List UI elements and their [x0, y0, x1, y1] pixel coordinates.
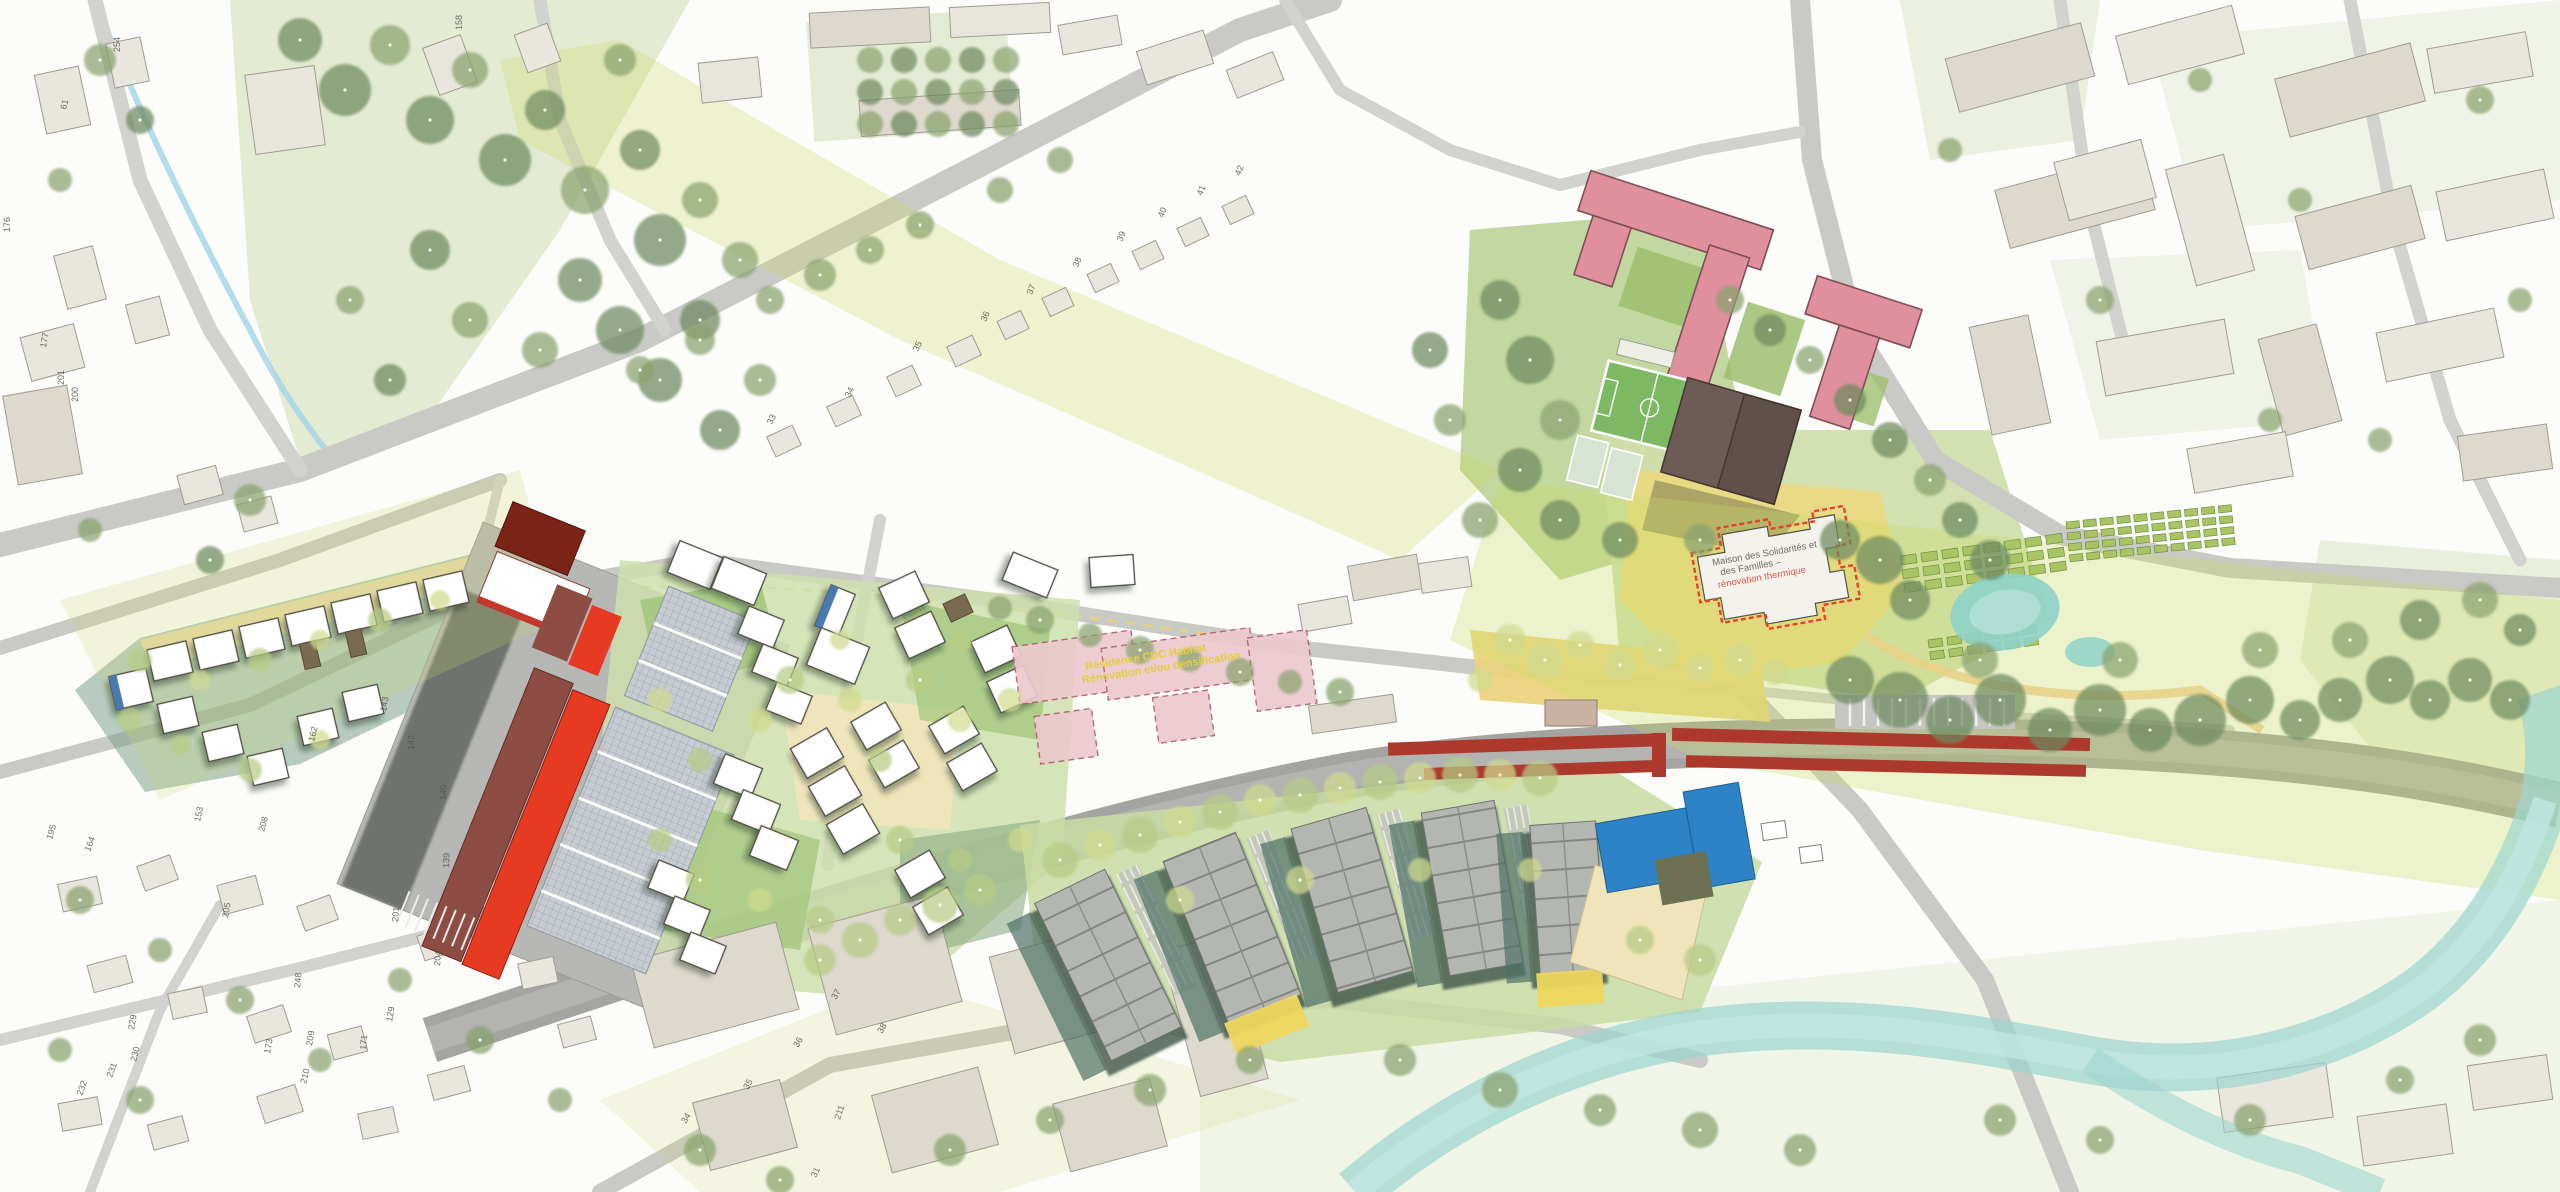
tree-center-dot — [248, 498, 251, 501]
garden-plot — [2100, 517, 2114, 525]
garden-plot — [2086, 552, 2100, 560]
tree-center-dot — [1498, 773, 1501, 776]
tree-center-dot — [1728, 298, 1731, 301]
garden-plot — [2204, 528, 2218, 536]
tree-center-dot — [428, 118, 431, 121]
tree-center-dot — [1508, 638, 1511, 641]
tree — [748, 708, 772, 732]
garden-plot — [1948, 647, 1963, 657]
tree-center-dot — [1218, 810, 1221, 813]
tree-center-dot — [2518, 628, 2521, 631]
tree — [993, 111, 1019, 137]
new-house — [1089, 555, 1135, 588]
tree-center-dot — [1428, 348, 1431, 351]
tree-center-dot — [1698, 1128, 1701, 1131]
tree-center-dot — [818, 958, 821, 961]
tree-center-dot — [538, 348, 541, 351]
parcel-number: 176 — [2, 217, 12, 232]
tree — [987, 177, 1013, 203]
tree-center-dot — [478, 1038, 481, 1041]
tree — [1047, 147, 1073, 173]
tree-center-dot — [1908, 598, 1911, 601]
garden-plot — [2201, 506, 2215, 514]
tree-center-dot — [788, 678, 791, 681]
tree — [2508, 288, 2532, 312]
parcel-number: 171 — [358, 1034, 369, 1050]
garden-plot — [2188, 541, 2202, 549]
tree-center-dot — [1048, 1118, 1051, 1121]
tree — [1518, 858, 1542, 882]
tree — [993, 79, 1019, 105]
masterplan-map: Maison des Solidarités et des Familles –… — [0, 0, 2560, 1192]
tree-center-dot — [1098, 843, 1101, 846]
tree-center-dot — [1338, 786, 1341, 789]
tree — [948, 708, 972, 732]
tree-center-dot — [1848, 678, 1851, 681]
tree-center-dot — [618, 58, 621, 61]
tree — [988, 596, 1012, 620]
tree-center-dot — [698, 318, 701, 321]
garden-plot — [2153, 534, 2167, 542]
garden-plot — [2220, 527, 2234, 535]
parcel-number: 254 — [112, 37, 122, 52]
tree-center-dot — [658, 378, 661, 381]
tree-center-dot — [1038, 618, 1041, 621]
tree-center-dot — [2198, 718, 2201, 721]
tree-center-dot — [778, 1178, 781, 1181]
tree-center-dot — [1148, 1088, 1151, 1091]
garden-plot — [2219, 516, 2233, 524]
tree-center-dot — [1798, 1148, 1801, 1151]
tree-center-dot — [468, 68, 471, 71]
tree — [170, 735, 190, 755]
tree-center-dot — [2478, 98, 2481, 101]
garden-plot — [2103, 550, 2117, 558]
tree-center-dot — [2348, 638, 2351, 641]
tree-center-dot — [298, 38, 301, 41]
parcel-number: 139 — [441, 853, 452, 868]
tree — [857, 79, 883, 105]
tree-center-dot — [1998, 1118, 2001, 1121]
garden-plot — [2169, 521, 2183, 529]
garden-plot — [2184, 508, 2198, 516]
garden-plot — [2167, 510, 2181, 518]
garden-plot — [2136, 535, 2150, 543]
tree — [190, 670, 210, 690]
tree-center-dot — [1298, 793, 1301, 796]
context-building — [1418, 557, 1472, 594]
tree-center-dot — [738, 258, 741, 261]
tree-center-dot — [2428, 698, 2431, 701]
garden-plot — [1928, 638, 1943, 648]
tree — [838, 688, 862, 712]
tree-center-dot — [758, 378, 761, 381]
tree-center-dot — [2148, 728, 2151, 731]
tree-center-dot — [138, 118, 141, 121]
garden-plot — [2187, 530, 2201, 538]
tree-center-dot — [543, 108, 546, 111]
tree-center-dot — [1558, 518, 1561, 521]
tree-center-dot — [2098, 1138, 2101, 1141]
tree-center-dot — [1698, 958, 1701, 961]
garden-plot — [2154, 545, 2168, 553]
tree-center-dot — [858, 938, 861, 941]
context-building — [698, 57, 762, 103]
tree — [48, 168, 72, 192]
tree-center-dot — [818, 918, 821, 921]
tree-center-dot — [1898, 698, 1901, 701]
tree-center-dot — [1498, 298, 1501, 301]
tree-center-dot — [578, 278, 581, 281]
tree — [118, 708, 142, 732]
tree-center-dot — [1178, 898, 1181, 901]
tree-center-dot — [1248, 1058, 1251, 1061]
garden-plot — [2101, 528, 2115, 536]
tree-center-dot — [1448, 418, 1451, 421]
garden-plot — [2084, 530, 2098, 538]
parcel-number: 201 — [390, 906, 401, 922]
garden-plot — [2004, 539, 2021, 550]
tree-center-dot — [898, 838, 901, 841]
tree-center-dot — [348, 298, 351, 301]
garden-plot — [2067, 532, 2081, 540]
tree-center-dot — [1808, 358, 1811, 361]
tree-center-dot — [1618, 538, 1621, 541]
tree-center-dot — [768, 298, 771, 301]
tree — [128, 648, 152, 672]
tree-center-dot — [78, 898, 81, 901]
garden-plot — [2046, 533, 2063, 544]
olive-volume — [1654, 851, 1713, 905]
garden-plot — [2171, 543, 2185, 551]
tree-center-dot — [1618, 663, 1621, 666]
tree — [48, 1038, 72, 1062]
tree — [1762, 659, 1788, 685]
tree-center-dot — [978, 888, 981, 891]
tree — [868, 748, 892, 772]
tree — [648, 828, 672, 852]
tree — [648, 688, 672, 712]
masterplan-svg: Maison des Solidarités et des Familles –… — [0, 0, 2560, 1192]
tree — [388, 968, 412, 992]
tree-center-dot — [1998, 698, 2001, 701]
garden-plot — [1902, 568, 1919, 579]
tree-center-dot — [2508, 698, 2511, 701]
tree-center-dot — [1658, 648, 1661, 651]
tree — [925, 111, 951, 137]
tree-center-dot — [2388, 678, 2391, 681]
tree-center-dot — [2248, 1118, 2251, 1121]
tree-center-dot — [638, 148, 641, 151]
tree — [238, 758, 262, 782]
parcel-number: 201 — [56, 370, 66, 385]
tree-center-dot — [2048, 728, 2051, 731]
tree-center-dot — [1298, 878, 1301, 881]
tree-center-dot — [2468, 678, 2471, 681]
tree-center-dot — [1458, 773, 1461, 776]
tree — [248, 648, 272, 672]
tree-center-dot — [698, 338, 701, 341]
tree-center-dot — [2398, 1078, 2401, 1081]
garden-plot — [2069, 553, 2083, 561]
garden-plot — [2151, 512, 2165, 520]
garden-plot — [2029, 564, 2046, 575]
garden-plot — [2222, 537, 2236, 545]
tree — [830, 630, 850, 650]
garden-plot — [2117, 515, 2131, 523]
garden-plot — [2102, 539, 2116, 547]
tree — [993, 47, 1019, 73]
context-building — [809, 7, 931, 48]
garden-plot — [1921, 551, 1938, 562]
garden-plot — [2066, 521, 2080, 529]
tree-center-dot — [1378, 780, 1381, 783]
tree — [1938, 138, 1962, 162]
tree-center-dot — [1558, 418, 1561, 421]
tree-center-dot — [938, 903, 941, 906]
garden-plot — [2152, 523, 2166, 531]
tree-center-dot — [698, 198, 701, 201]
garden-plot — [2048, 547, 2065, 558]
tree-center-dot — [1838, 538, 1841, 541]
tree-center-dot — [658, 238, 661, 241]
tree-center-dot — [2248, 698, 2251, 701]
garden-plot — [2170, 532, 2184, 540]
tree-center-dot — [1928, 478, 1931, 481]
garden-plot — [1944, 562, 1961, 573]
tree — [959, 79, 985, 105]
tree — [1278, 670, 1302, 694]
tree-center-dot — [1598, 1108, 1601, 1111]
station-building — [1545, 700, 1597, 726]
tree-center-dot — [1768, 328, 1771, 331]
tree — [925, 47, 951, 73]
tree-center-dot — [1988, 558, 1991, 561]
tree-center-dot — [1138, 833, 1141, 836]
garden-plot — [2118, 526, 2132, 534]
tree-center-dot — [2098, 708, 2101, 711]
tree-center-dot — [698, 1148, 701, 1151]
parcel-number: 248 — [292, 972, 304, 988]
tree-center-dot — [868, 248, 871, 251]
tree — [78, 518, 102, 542]
tree-center-dot — [698, 878, 701, 881]
tree-center-dot — [1058, 858, 1061, 861]
tree-center-dot — [2118, 658, 2121, 661]
parcel-number: 204 — [432, 950, 443, 966]
tree — [2288, 188, 2312, 212]
tree — [857, 47, 883, 73]
tree-center-dot — [1698, 666, 1701, 669]
tree-center-dot — [918, 223, 921, 226]
tree-center-dot — [638, 368, 641, 371]
tree — [959, 111, 985, 137]
garden-plot — [2068, 543, 2082, 551]
tree — [891, 111, 917, 137]
tree — [1078, 623, 1102, 647]
tree — [548, 1088, 572, 1112]
garden-plot — [2185, 519, 2199, 527]
tree-center-dot — [208, 558, 211, 561]
tree-center-dot — [1878, 558, 1881, 561]
garden-plot — [1923, 565, 1940, 576]
garden-plot — [2202, 517, 2216, 525]
tree-center-dot — [948, 1148, 951, 1151]
tree-center-dot — [428, 248, 431, 251]
tree — [368, 608, 392, 632]
tree-center-dot — [1538, 776, 1541, 779]
tree-center-dot — [1978, 658, 1981, 661]
parcel-number: 142 — [406, 735, 417, 750]
garden-plot — [1945, 576, 1962, 587]
tree-center-dot — [1888, 438, 1891, 441]
tree-center-dot — [1398, 1058, 1401, 1061]
tree — [148, 938, 172, 962]
context-building — [245, 66, 325, 155]
tree-center-dot — [1258, 798, 1261, 801]
tree — [857, 111, 883, 137]
tree-center-dot — [1498, 1088, 1501, 1091]
parcel-number: 140 — [438, 785, 449, 800]
tree-center-dot — [1478, 518, 1481, 521]
tree-center-dot — [2478, 1038, 2481, 1041]
tree-center-dot — [238, 998, 241, 1001]
tree-center-dot — [1543, 658, 1546, 661]
garden-plot — [2134, 514, 2148, 522]
tree-center-dot — [618, 328, 621, 331]
garden-plot — [2135, 524, 2149, 532]
tree — [891, 79, 917, 105]
tree-center-dot — [583, 188, 586, 191]
tree-center-dot — [918, 678, 921, 681]
tree-center-dot — [818, 273, 821, 276]
tree-center-dot — [98, 58, 101, 61]
tree-center-dot — [898, 918, 901, 921]
tree — [1468, 668, 1492, 692]
tree — [998, 688, 1022, 712]
garden-plot — [2120, 548, 2134, 556]
tree — [1408, 858, 1432, 882]
tree-center-dot — [2418, 618, 2421, 621]
tree — [308, 1048, 332, 1072]
tree — [925, 79, 951, 105]
tree-center-dot — [1418, 776, 1421, 779]
garden-plot — [2049, 561, 2066, 572]
tree-center-dot — [388, 43, 391, 46]
tree-center-dot — [1948, 718, 1951, 721]
garden-plot — [1942, 548, 1959, 559]
tree-center-dot — [343, 88, 346, 91]
parcel-number: 158 — [454, 15, 464, 30]
tree-center-dot — [2338, 698, 2341, 701]
tree-center-dot — [1698, 538, 1701, 541]
parcel-number: 200 — [70, 387, 80, 402]
context-building — [949, 2, 1050, 37]
tree-center-dot — [1238, 670, 1241, 673]
tree — [959, 47, 985, 73]
tree-center-dot — [2478, 598, 2481, 601]
tree-center-dot — [1848, 398, 1851, 401]
garden-plot — [2083, 519, 2097, 527]
garden-plot — [2119, 537, 2133, 545]
tree — [2258, 408, 2282, 432]
tree-center-dot — [468, 318, 471, 321]
garden-plot — [1930, 650, 1945, 660]
tree-center-dot — [1738, 658, 1741, 661]
tree-center-dot — [2298, 718, 2301, 721]
tree — [948, 628, 972, 652]
tree-center-dot — [1578, 643, 1581, 646]
tree-center-dot — [138, 1098, 141, 1101]
garden-plot — [2205, 539, 2219, 547]
tree-center-dot — [1638, 938, 1641, 941]
garden-plot — [2085, 541, 2099, 549]
tree — [748, 888, 772, 912]
tree — [430, 590, 450, 610]
tree — [948, 848, 972, 872]
tree-center-dot — [1528, 358, 1531, 361]
garden-plot — [2137, 546, 2151, 554]
tree-center-dot — [2258, 648, 2261, 651]
tree — [891, 47, 917, 73]
tree-center-dot — [2098, 298, 2101, 301]
tree — [1008, 828, 1032, 852]
garden-plot — [2027, 550, 2044, 561]
garden-plot — [1925, 579, 1942, 590]
tree-center-dot — [718, 428, 721, 431]
tree-center-dot — [1958, 518, 1961, 521]
tree — [2188, 68, 2212, 92]
garden-plot — [2218, 505, 2232, 513]
tree-center-dot — [1518, 468, 1521, 471]
tree-center-dot — [388, 378, 391, 381]
tree — [688, 748, 712, 772]
tree-center-dot — [503, 158, 506, 161]
tree — [310, 630, 330, 650]
tree — [2368, 428, 2392, 452]
yellow-yard — [1536, 969, 1604, 1008]
tree-center-dot — [1338, 690, 1341, 693]
tree-center-dot — [1178, 820, 1181, 823]
garden-plot — [2025, 536, 2042, 547]
